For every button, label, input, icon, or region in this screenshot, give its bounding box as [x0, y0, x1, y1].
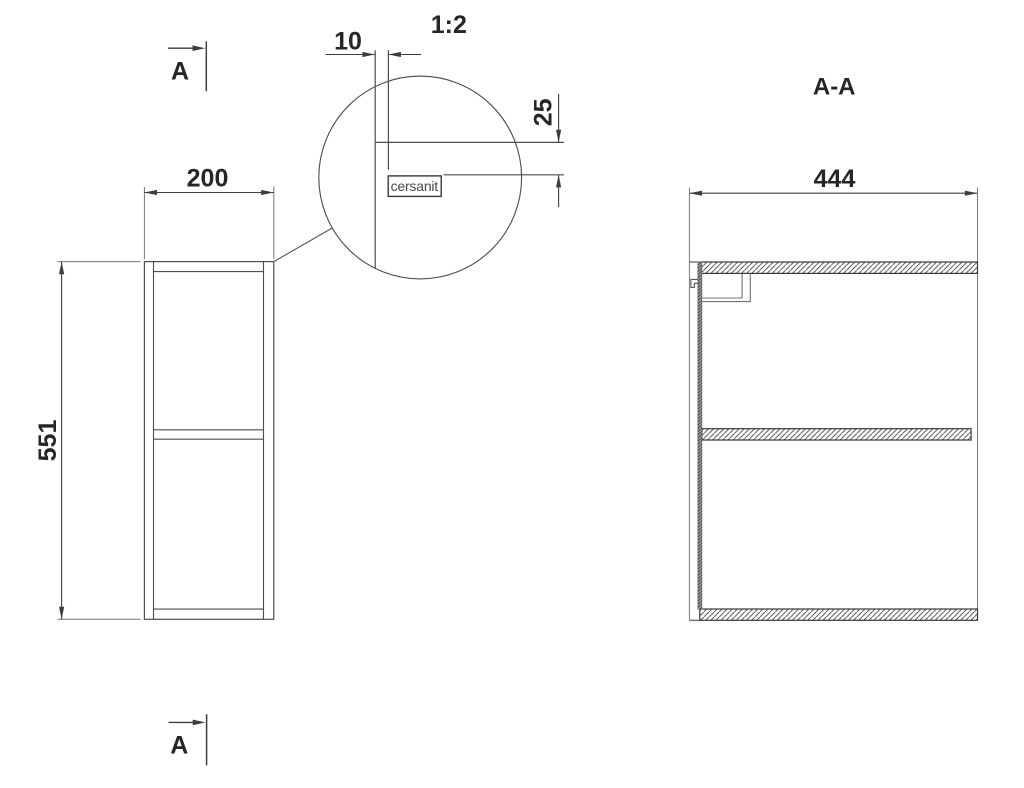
svg-text:200: 200 [187, 164, 229, 192]
svg-text:A: A [171, 58, 189, 86]
svg-text:551: 551 [34, 420, 62, 462]
svg-text:A: A [170, 731, 188, 759]
svg-text:10: 10 [334, 28, 362, 56]
svg-text:444: 444 [814, 165, 856, 193]
svg-text:cersanit: cersanit [391, 178, 439, 194]
svg-text:1:2: 1:2 [431, 11, 467, 39]
svg-text:25: 25 [530, 98, 558, 126]
svg-text:A-A: A-A [813, 74, 856, 101]
